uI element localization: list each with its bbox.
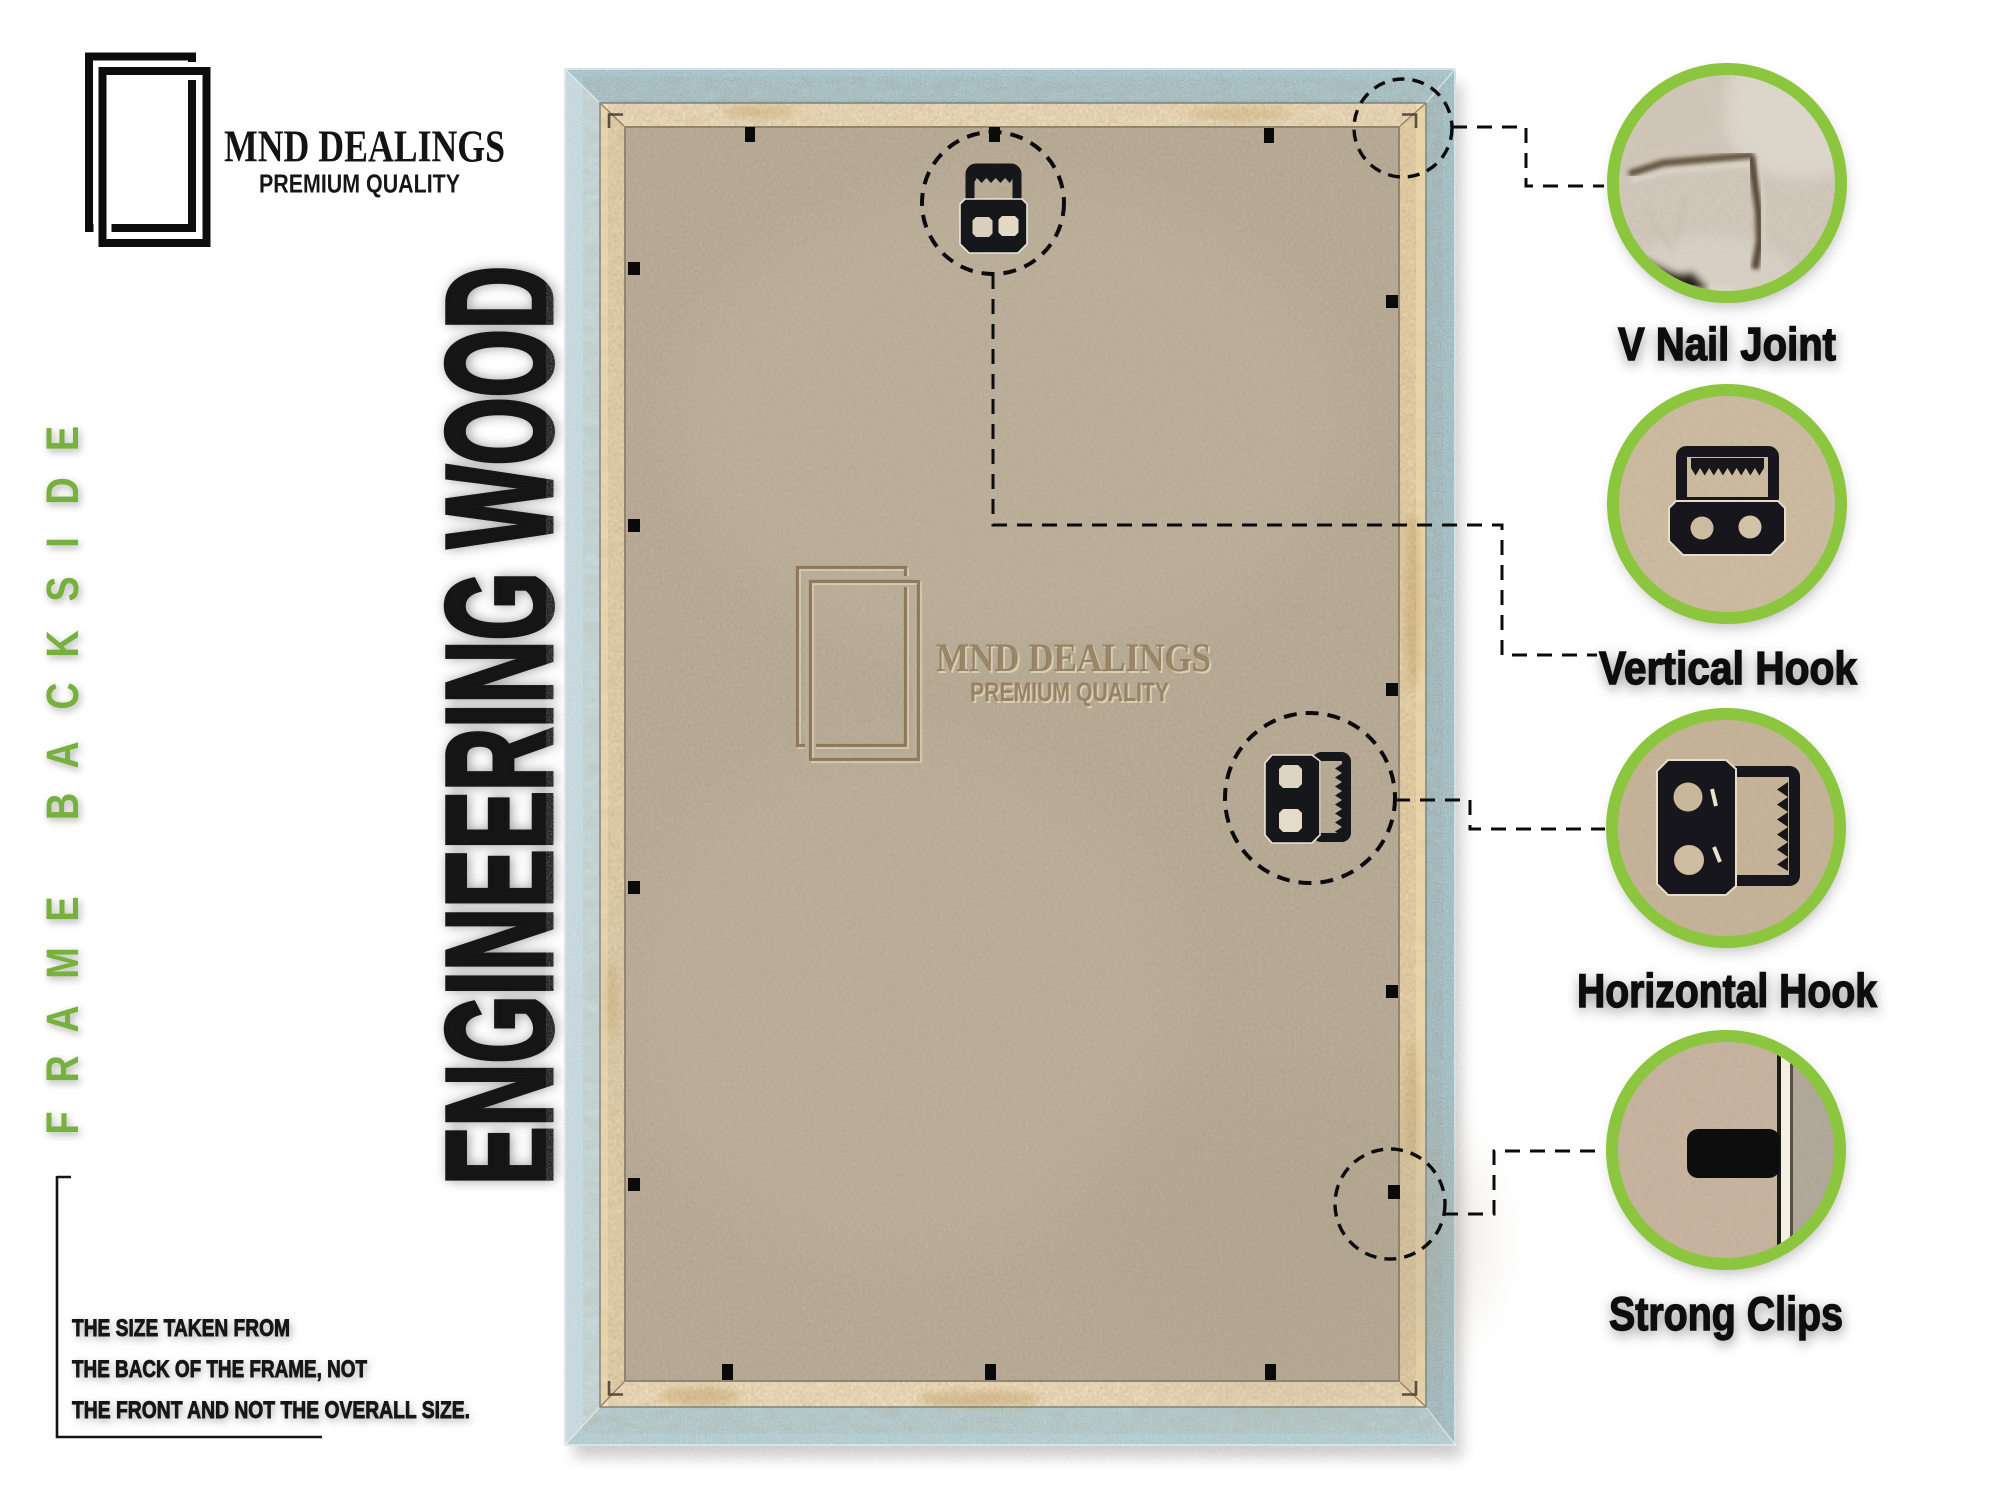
svg-text:Strong Clips: Strong Clips	[1609, 1287, 1843, 1340]
svg-text:C: C	[37, 682, 88, 709]
svg-text:MND DEALINGS: MND DEALINGS	[936, 635, 1211, 680]
svg-text:D: D	[37, 477, 88, 504]
svg-text:S: S	[37, 576, 88, 601]
svg-text:THE BACK OF THE FRAME, NOT: THE BACK OF THE FRAME, NOT	[72, 1356, 367, 1383]
svg-text:K: K	[37, 630, 88, 657]
svg-text:F: F	[37, 1111, 88, 1134]
svg-text:I: I	[37, 537, 88, 548]
svg-text:R: R	[37, 1055, 88, 1082]
svg-text:E: E	[37, 896, 88, 921]
svg-text:PREMIUM QUALITY: PREMIUM QUALITY	[259, 169, 460, 199]
svg-text:THE SIZE TAKEN FROM: THE SIZE TAKEN FROM	[72, 1315, 290, 1342]
svg-text:MND DEALINGS: MND DEALINGS	[224, 122, 505, 172]
svg-text:Horizontal Hook: Horizontal Hook	[1577, 964, 1878, 1017]
svg-text:B: B	[37, 793, 88, 820]
svg-text:PREMIUM QUALITY: PREMIUM QUALITY	[970, 677, 1169, 707]
svg-text:E: E	[37, 426, 88, 451]
svg-text:THE FRONT AND NOT THE OVERALL: THE FRONT AND NOT THE OVERALL SIZE.	[72, 1397, 470, 1424]
svg-text:A: A	[37, 1005, 88, 1032]
svg-text:A: A	[37, 741, 88, 768]
svg-text:V Nail Joint: V Nail Joint	[1618, 318, 1836, 370]
svg-text:ENGINEERING WOOD: ENGINEERING WOOD	[415, 266, 583, 1185]
svg-text:Vertical Hook: Vertical Hook	[1599, 642, 1857, 694]
svg-text:M: M	[37, 947, 88, 978]
